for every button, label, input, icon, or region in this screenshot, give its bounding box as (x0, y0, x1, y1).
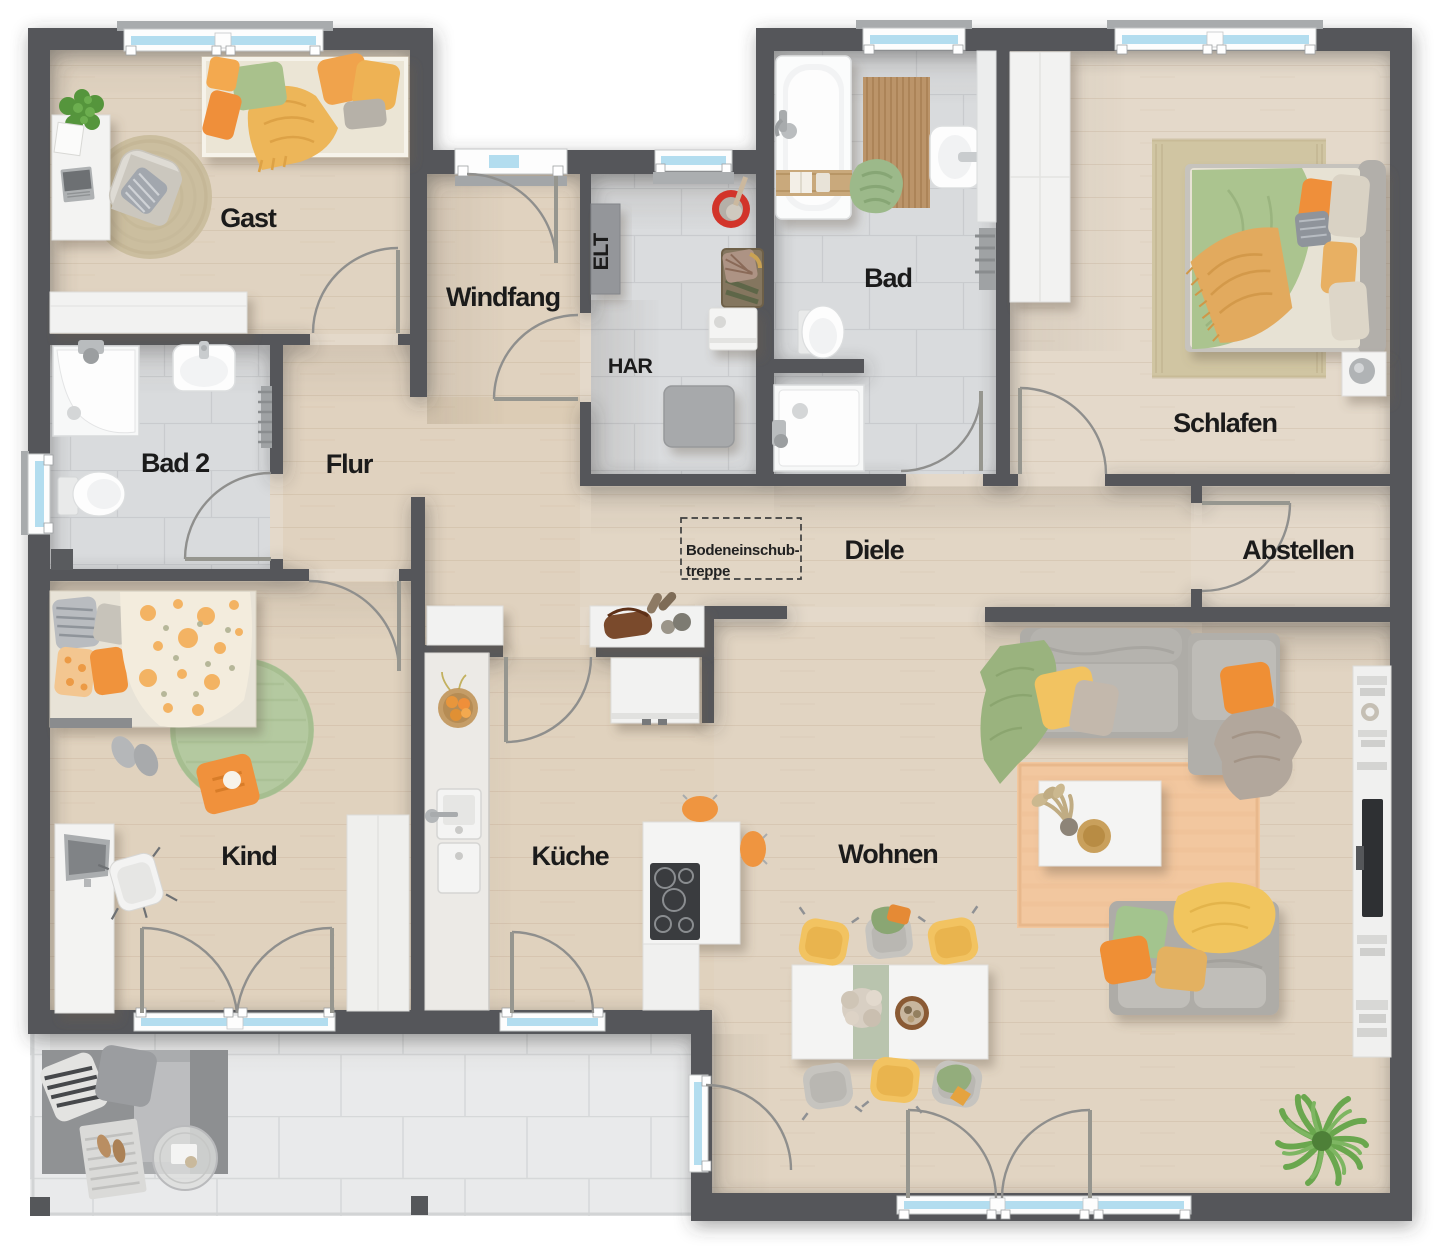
svg-text:treppe: treppe (686, 563, 730, 580)
svg-text:Windfang: Windfang (446, 282, 560, 312)
svg-text:Bodeneinschub-: Bodeneinschub- (686, 542, 800, 559)
svg-text:Kind: Kind (221, 841, 277, 871)
svg-text:Schlafen: Schlafen (1173, 408, 1277, 438)
svg-text:ELT: ELT (589, 233, 613, 270)
svg-text:Bad 2: Bad 2 (141, 448, 209, 478)
svg-text:Bad: Bad (864, 263, 912, 293)
svg-text:HAR: HAR (608, 354, 653, 378)
svg-text:Wohnen: Wohnen (838, 839, 937, 869)
svg-text:Gast: Gast (220, 203, 277, 233)
svg-text:Diele: Diele (844, 535, 904, 565)
svg-text:Abstellen: Abstellen (1242, 535, 1354, 565)
svg-text:Küche: Küche (531, 841, 609, 871)
svg-text:Flur: Flur (326, 449, 374, 479)
